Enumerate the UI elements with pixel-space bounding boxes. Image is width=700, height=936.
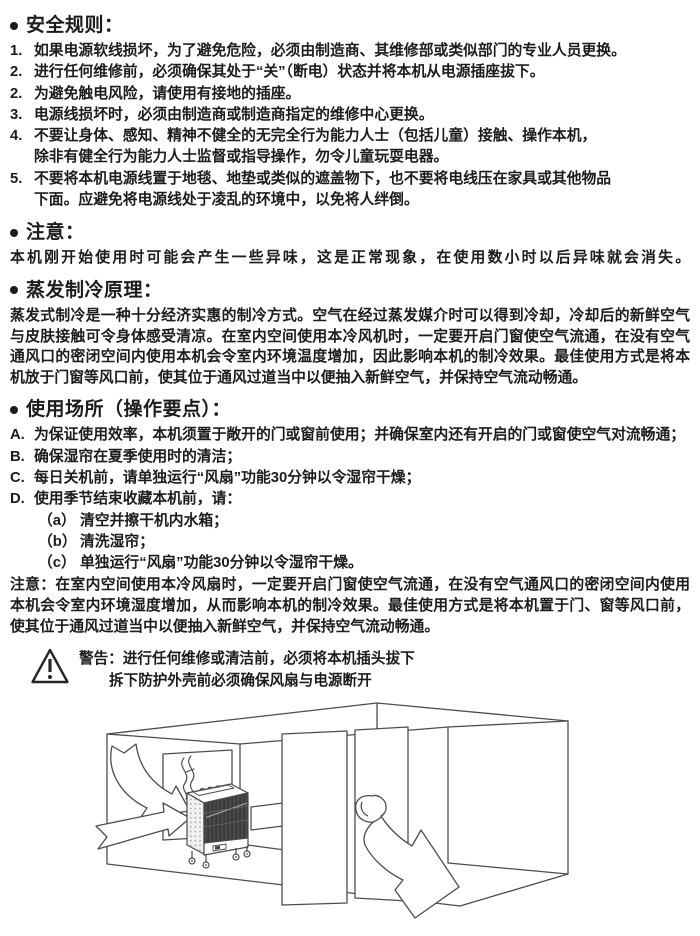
list-item: 5. 不要将本机电源线置于地毯、地垫或类似的遮盖物下，也不要将电线压在家具或其他… (10, 169, 690, 212)
section-attention: 注意： 本机刚开始使用时可能会产生一些异味，这是正常现象，在使用数小时以后异味就… (0, 220, 700, 269)
inlet-arrow-top (111, 744, 190, 817)
bullet-icon (10, 22, 18, 30)
airflow-duct-slab (251, 803, 283, 830)
section-heading-principle: 蒸发制冷原理： (10, 278, 690, 303)
section-usage: 使用场所（操作要点）： A. 为保证使用效率，本机须置于敞开的门或窗前使用；并确… (0, 397, 700, 637)
sub-list-item: （a） 清空并擦干机内水箱； (38, 511, 690, 532)
bullet-icon (10, 406, 18, 414)
attention-body: 本机刚开始使用时可能会产生一些异味，这是正常现象，在使用数小时以后异味就会消失。 (10, 248, 690, 269)
inlet-arrow-side (96, 803, 190, 849)
list-item: B. 确保湿帘在夏季使用时的清洁； (10, 447, 690, 468)
warning-block: 警告：进行任何维修或清洁前，必须将本机插头拔下 拆下防护外壳前必须确保风扇与电源… (20, 647, 700, 692)
usage-note: 注意：在室内空间使用本冷风扇时，一定要开启门窗使空气流通，在没有空气通风口的密闭… (10, 575, 690, 637)
section-heading-attention: 注意： (10, 220, 690, 245)
warning-text: 警告：进行任何维修或清洁前，必须将本机插头拔下 拆下防护外壳前必须确保风扇与电源… (79, 647, 415, 692)
door-panel-left (282, 731, 347, 905)
list-item: 4. 不要让身体、感知、精神不健全的无完全行为能力人士（包括儿童）接触、操作本机… (10, 126, 690, 169)
section-title: 蒸发制冷原理： (26, 278, 163, 303)
section-heading-safety: 安全规则： (10, 13, 690, 38)
bullet-icon (10, 286, 18, 294)
principle-body: 蒸发式制冷是一种十分经济实惠的制冷方式。空气在经过蒸发媒介时可以得到冷却，冷却后… (10, 306, 690, 388)
sub-list-item: （c） 单独运行“风扇”功能30分钟以令湿帘干燥。 (38, 553, 690, 574)
bullet-icon (10, 229, 18, 237)
warning-line-2: 拆下防护外壳前必须确保风扇与电源断开 (109, 670, 415, 692)
cooler (187, 784, 250, 868)
section-cooling-principle: 蒸发制冷原理： 蒸发式制冷是一种十分经济实惠的制冷方式。空气在经过蒸发媒介时可以… (0, 278, 700, 388)
section-title: 注意： (26, 220, 85, 245)
list-item: D. 使用季节结束收藏本机前，请： (10, 489, 690, 510)
list-item: 3. 电源线损坏时，必须由制造商或制造商指定的维修中心更换。 (10, 105, 690, 126)
list-item: 2. 进行任何维修前，必须确保其处于“关”（断电）状态并将本机从电源插座拔下。 (10, 62, 690, 83)
warning-triangle-icon (30, 647, 70, 687)
section-title: 安全规则： (26, 13, 124, 38)
list-item: 1. 如果电源软线损坏，为了避免危险，必须由制造商、其维修部或类似部门的专业人员… (10, 41, 690, 62)
list-item: A. 为保证使用效率，本机须置于敞开的门或窗前使用；并确保室内还有开启的门或窗使… (10, 425, 690, 446)
section-title: 使用场所（操作要点）： (26, 397, 231, 422)
manual-page: 安全规则： 1. 如果电源软线损坏，为了避免危险，必须由制造商、其维修部或类似部… (0, 0, 700, 933)
list-item: C. 每日关机前，请单独运行“风扇”功能30分钟以令湿帘干燥； (10, 468, 690, 489)
section-safety-rules: 安全规则： 1. 如果电源软线损坏，为了避免危险，必须由制造商、其维修部或类似部… (0, 13, 700, 211)
section-heading-usage: 使用场所（操作要点）： (10, 397, 690, 422)
list-item: 2. 为避免触电风险，请使用有接地的插座。 (10, 84, 690, 105)
cooler-pad (187, 793, 204, 854)
warning-line-1: 警告：进行任何维修或清洁前，必须将本机插头拔下 (79, 648, 415, 670)
sub-list-item: （b） 清洗湿帘； (38, 532, 690, 553)
airflow-diagram (0, 696, 700, 936)
